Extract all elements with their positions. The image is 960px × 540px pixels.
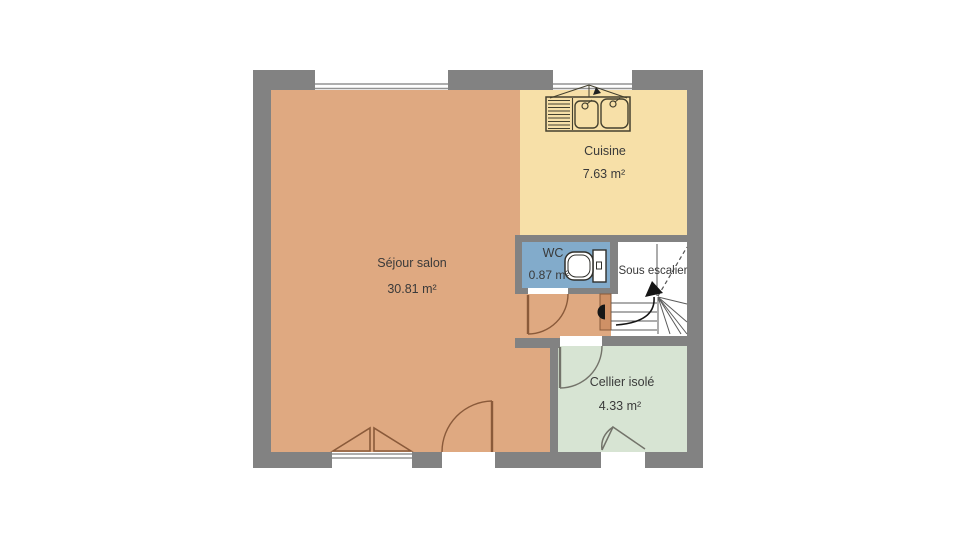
window-top-sejour (315, 84, 448, 89)
wall-wc-east (610, 235, 618, 294)
wall-bottom-seg4 (645, 452, 703, 468)
cellier-area: 4.33 m² (599, 399, 641, 413)
wall-wc-west (515, 235, 522, 294)
wall-top-right-pier (632, 70, 703, 90)
cellier-label: Cellier isolé (590, 375, 655, 389)
wall-exterior-right (687, 70, 703, 468)
wall-exterior-left (253, 70, 271, 468)
cellier-door-opening (560, 336, 602, 346)
toilet-icon (565, 250, 606, 282)
wall-top-middle-pier (448, 70, 553, 90)
wall-cellier-west (550, 338, 558, 452)
room-cuisine-fill (520, 90, 687, 237)
cuisine-area: 7.63 m² (583, 167, 625, 181)
sejour-label: Séjour salon (377, 256, 447, 270)
understairs-door (598, 294, 612, 330)
wall-wc-south-right (568, 288, 618, 294)
wall-kitchen-south (515, 235, 687, 242)
wall-bottom-seg2 (412, 452, 442, 468)
cuisine-label: Cuisine (584, 144, 626, 158)
wall-bottom-seg1 (253, 452, 332, 468)
wall-cellier-north (602, 336, 687, 346)
wall-wc-south-left (515, 288, 528, 294)
wall-top-left-pier (253, 70, 315, 90)
sous-escalier-label: Sous escalier (618, 265, 687, 277)
wc-label: WC (543, 246, 564, 260)
wc-area: 0.87 m² (529, 268, 570, 282)
toilet-button (597, 262, 602, 269)
wall-bottom-seg3 (495, 452, 601, 468)
sejour-area: 30.81 m² (387, 282, 436, 296)
floor-plan-canvas: Séjour salon 30.81 m² Cuisine 7.63 m² WC… (0, 0, 960, 540)
window-bottom-sejour (332, 454, 412, 458)
wc-door-opening (528, 288, 568, 294)
